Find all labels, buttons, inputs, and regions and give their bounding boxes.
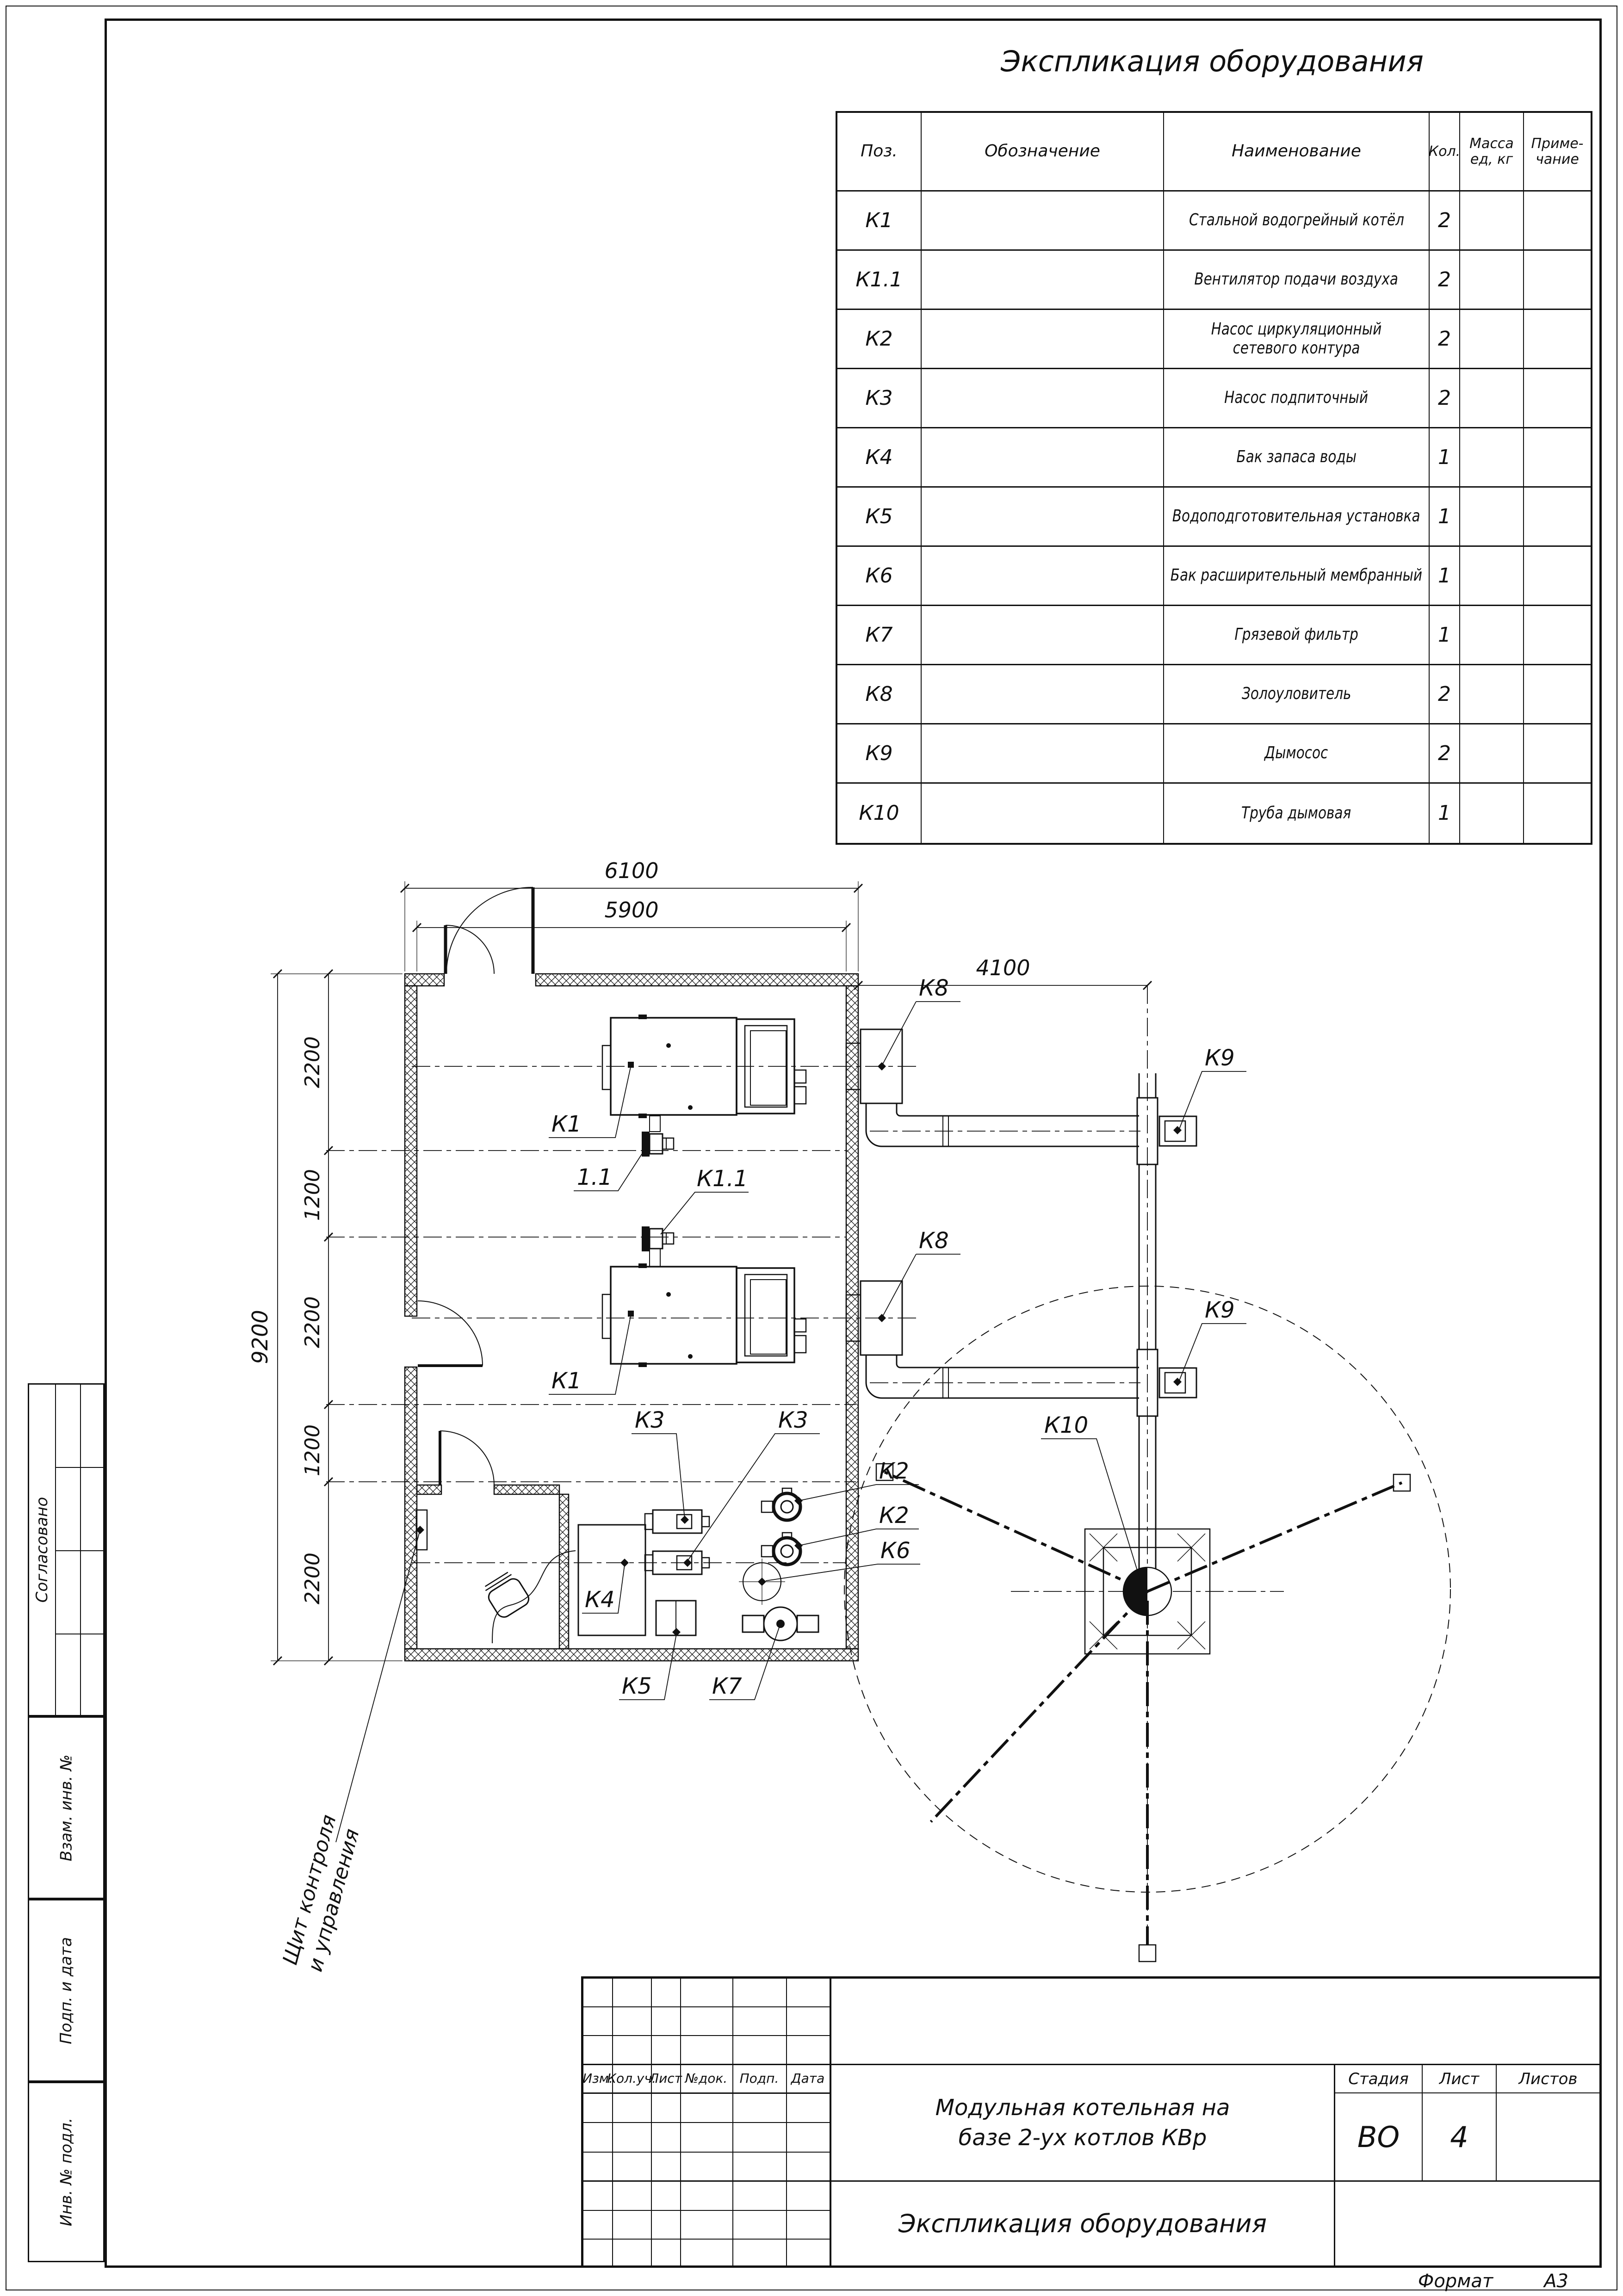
doc-title: Экспликация оборудования xyxy=(831,2182,1334,2265)
label-k2-upper: К2 xyxy=(879,1458,909,1484)
row-mass xyxy=(1460,784,1524,843)
format-value: А3 xyxy=(1544,2271,1568,2292)
dim-seg: 1200 xyxy=(301,1424,324,1476)
label-k9-top: К9 xyxy=(1205,1045,1235,1071)
label-control-panel: Щит контроля и управления xyxy=(278,1812,366,1974)
row-name: Труба дымовая xyxy=(1164,784,1430,843)
row-note xyxy=(1524,665,1591,724)
label-k3-lower: К3 xyxy=(778,1407,808,1433)
row-designation xyxy=(922,310,1164,369)
row-note xyxy=(1524,606,1591,665)
flue-line-bottom xyxy=(846,1281,1196,1416)
row-designation xyxy=(922,665,1164,724)
row-note xyxy=(1524,547,1591,606)
row-qty: 2 xyxy=(1430,369,1460,428)
row-name: Бак расширительный мембранный xyxy=(1164,547,1430,606)
row-mass xyxy=(1460,192,1524,251)
row-mass xyxy=(1460,606,1524,665)
row-qty: 2 xyxy=(1430,251,1460,310)
tb-col-koluch: Кол.уч. xyxy=(612,2064,651,2092)
row-pos: К9 xyxy=(837,724,922,784)
row-pos: К1 xyxy=(837,192,922,251)
stage-label: Стадия xyxy=(1335,2065,1422,2092)
row-note xyxy=(1524,428,1591,488)
tb-col-list: Лист xyxy=(651,2064,680,2092)
row-mass xyxy=(1460,724,1524,784)
row-name: Вентилятор подачи воздуха xyxy=(1164,251,1430,310)
building-walls xyxy=(405,974,858,1661)
row-designation xyxy=(922,724,1164,784)
stamp-sign-label: Подп. и дата xyxy=(57,1937,75,2044)
row-designation xyxy=(922,251,1164,310)
stage-value: ВО xyxy=(1335,2094,1422,2180)
pump-k2-upper xyxy=(762,1488,800,1520)
row-pos: К10 xyxy=(837,784,922,843)
row-name: Насос циркуляционный сетевого контура xyxy=(1164,310,1430,369)
label-k6: К6 xyxy=(880,1538,911,1564)
col-header-qty: Кол. xyxy=(1430,113,1460,192)
stamp-inv-label: Инв. № подл. xyxy=(57,2118,75,2227)
tb-col-data: Дата xyxy=(786,2064,830,2092)
boiler-k1-bottom xyxy=(602,1263,806,1367)
tb-col-podp: Подп. xyxy=(732,2064,786,2092)
row-qty: 1 xyxy=(1430,428,1460,488)
stamp-inv-block: Инв. № подл. xyxy=(28,2082,105,2262)
dim-5900: 5900 xyxy=(604,897,658,922)
label-k8-top: К8 xyxy=(919,975,949,1001)
row-pos: К4 xyxy=(837,428,922,488)
row-mass xyxy=(1460,428,1524,488)
label-k9-bottom: К9 xyxy=(1205,1297,1235,1323)
row-qty: 1 xyxy=(1430,488,1460,547)
row-name: Золоуловитель xyxy=(1164,665,1430,724)
stamp-sign-block: Подп. и дата xyxy=(28,1899,105,2082)
row-name: Водоподготовительная установка xyxy=(1164,488,1430,547)
row-designation xyxy=(922,488,1164,547)
dimensions xyxy=(271,881,1152,1665)
row-pos: К7 xyxy=(837,606,922,665)
row-qty: 2 xyxy=(1430,724,1460,784)
row-name: Насос подпиточный xyxy=(1164,369,1430,428)
stamp-agreed-label: Согласовано xyxy=(33,1497,51,1603)
equipment-table: Поз. Обозначение Наименование Кол. Масса… xyxy=(836,111,1592,845)
format-label: Формат xyxy=(1418,2271,1493,2292)
stamp-subst-label: Взам. инв. № xyxy=(57,1754,75,1861)
sheet-value: 4 xyxy=(1423,2094,1496,2180)
pump-k2-lower xyxy=(762,1533,800,1565)
sheets-label: Листов xyxy=(1497,2065,1599,2092)
row-note xyxy=(1524,369,1591,428)
row-designation xyxy=(922,192,1164,251)
col-header-pos: Поз. xyxy=(837,113,922,192)
row-qty: 2 xyxy=(1430,665,1460,724)
dim-seg: 1200 xyxy=(301,1169,324,1221)
filter-k7 xyxy=(743,1607,818,1640)
label-k2-lower: К2 xyxy=(879,1503,909,1529)
row-pos: К5 xyxy=(837,488,922,547)
row-mass xyxy=(1460,665,1524,724)
tb-col-ndok: №док. xyxy=(680,2064,732,2092)
label-k8-bottom: К8 xyxy=(919,1228,949,1254)
row-designation xyxy=(922,784,1164,843)
title-block: Изм. Кол.уч. Лист №док. Подп. Дата Модул… xyxy=(581,1976,1602,2268)
stamp-agreed-block: Согласовано xyxy=(28,1383,105,1716)
row-mass xyxy=(1460,547,1524,606)
fan-k11-bottom xyxy=(642,1226,674,1267)
col-header-mass: Массаед, кг xyxy=(1460,113,1524,192)
sheet-label: Лист xyxy=(1423,2065,1496,2092)
row-note xyxy=(1524,310,1591,369)
col-header-note: Приме-чание xyxy=(1524,113,1591,192)
row-note xyxy=(1524,192,1591,251)
label-k3-upper: К3 xyxy=(635,1407,665,1433)
row-qty: 2 xyxy=(1430,192,1460,251)
format-note: Формат А3 xyxy=(1356,2271,1596,2292)
row-note xyxy=(1524,488,1591,547)
row-name: Стальной водогрейный котёл xyxy=(1164,192,1430,251)
row-mass xyxy=(1460,488,1524,547)
row-qty: 1 xyxy=(1430,547,1460,606)
project-name: Модульная котельная на базе 2-ух котлов … xyxy=(831,2065,1334,2180)
row-pos: К8 xyxy=(837,665,922,724)
label-fan-11: 1.1 xyxy=(577,1164,612,1190)
dim-seg: 2200 xyxy=(301,1553,324,1604)
flue-line-top xyxy=(846,1029,1196,1164)
row-note xyxy=(1524,251,1591,310)
stamp-subst-block: Взам. инв. № xyxy=(28,1716,105,1899)
label-k10: К10 xyxy=(1044,1412,1088,1438)
row-mass xyxy=(1460,251,1524,310)
label-k4: К4 xyxy=(585,1587,615,1613)
row-name: Дымосос xyxy=(1164,724,1430,784)
label-k5: К5 xyxy=(622,1673,652,1699)
row-qty: 2 xyxy=(1430,310,1460,369)
col-header-designation: Обозначение xyxy=(922,113,1164,192)
row-mass xyxy=(1460,310,1524,369)
row-designation xyxy=(922,547,1164,606)
row-pos: К6 xyxy=(837,547,922,606)
dim-9200: 9200 xyxy=(250,1310,273,1364)
dim-seg: 2200 xyxy=(301,1296,324,1348)
drawing-sheet: Экспликация оборудования Поз. Обозначени… xyxy=(0,0,1623,2296)
label-fan-k11: К1.1 xyxy=(697,1166,748,1192)
label-k1-top: К1 xyxy=(551,1111,582,1137)
row-pos: К2 xyxy=(837,310,922,369)
row-designation xyxy=(922,606,1164,665)
tank-k4 xyxy=(578,1525,645,1635)
row-qty: 1 xyxy=(1430,606,1460,665)
boiler-plant-plan: 6100 5900 4100 9200 2200 1200 2200 1200 … xyxy=(250,847,1527,2077)
row-mass xyxy=(1460,369,1524,428)
row-pos: К1.1 xyxy=(837,251,922,310)
row-designation xyxy=(922,428,1164,488)
row-pos: К3 xyxy=(837,369,922,428)
row-note xyxy=(1524,784,1591,843)
col-header-name: Наименование xyxy=(1164,113,1430,192)
dim-6100: 6100 xyxy=(604,858,658,883)
row-name: Бак запаса воды xyxy=(1164,428,1430,488)
row-note xyxy=(1524,724,1591,784)
guy-wires xyxy=(876,1464,1410,1962)
pump-k3-upper xyxy=(645,1510,709,1533)
dim-seg: 2200 xyxy=(301,1036,324,1088)
dim-4100: 4100 xyxy=(976,955,1030,980)
equipment-table-title: Экспликация оборудования xyxy=(836,44,1589,78)
sheets-value xyxy=(1497,2094,1599,2180)
left-stamp-column: Согласовано Взам. инв. № Подп. и дата Ин… xyxy=(28,1383,105,2267)
row-qty: 1 xyxy=(1430,784,1460,843)
axis-lines xyxy=(326,985,1284,1943)
label-k1-bottom: К1 xyxy=(551,1368,582,1394)
row-designation xyxy=(922,369,1164,428)
row-name: Грязевой фильтр xyxy=(1164,606,1430,665)
label-k7: К7 xyxy=(712,1673,742,1699)
